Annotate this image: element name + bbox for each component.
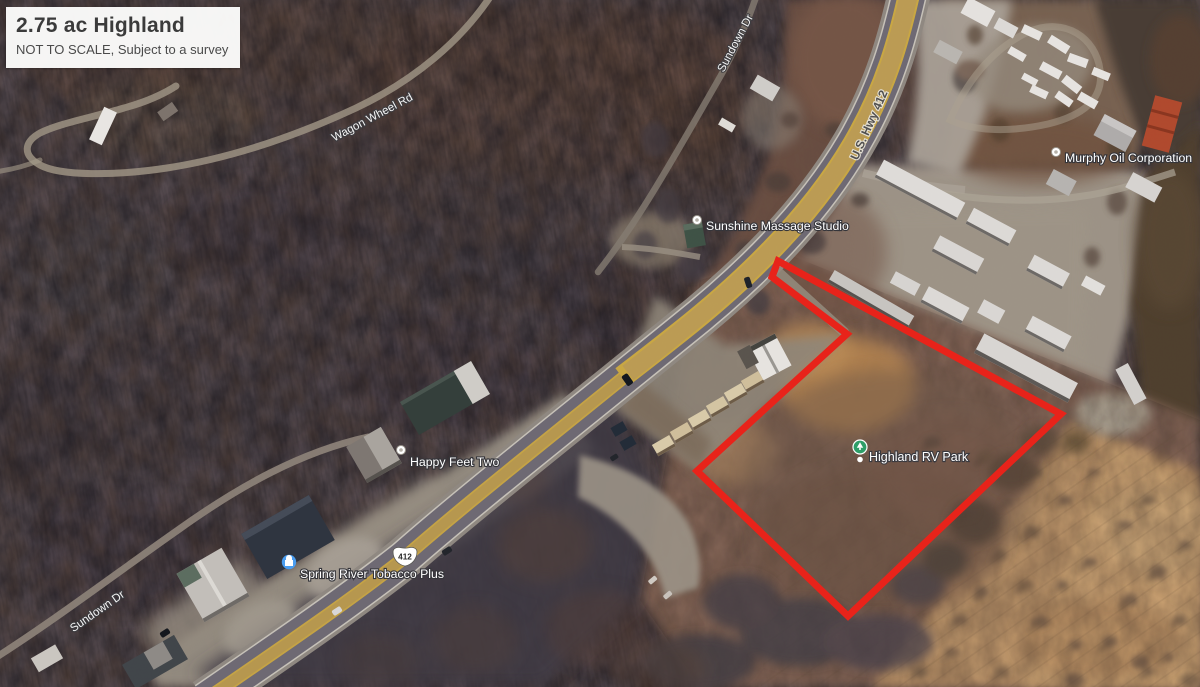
svg-text:Happy Feet Two: Happy Feet Two xyxy=(410,455,499,469)
svg-text:Sunshine Massage Studio: Sunshine Massage Studio xyxy=(706,219,849,233)
svg-text:Highland RV Park: Highland RV Park xyxy=(869,450,969,464)
svg-text:412: 412 xyxy=(398,553,412,562)
svg-text:Murphy Oil Corporation: Murphy Oil Corporation xyxy=(1065,151,1192,165)
svg-text:Spring River Tobacco Plus: Spring River Tobacco Plus xyxy=(300,567,444,581)
